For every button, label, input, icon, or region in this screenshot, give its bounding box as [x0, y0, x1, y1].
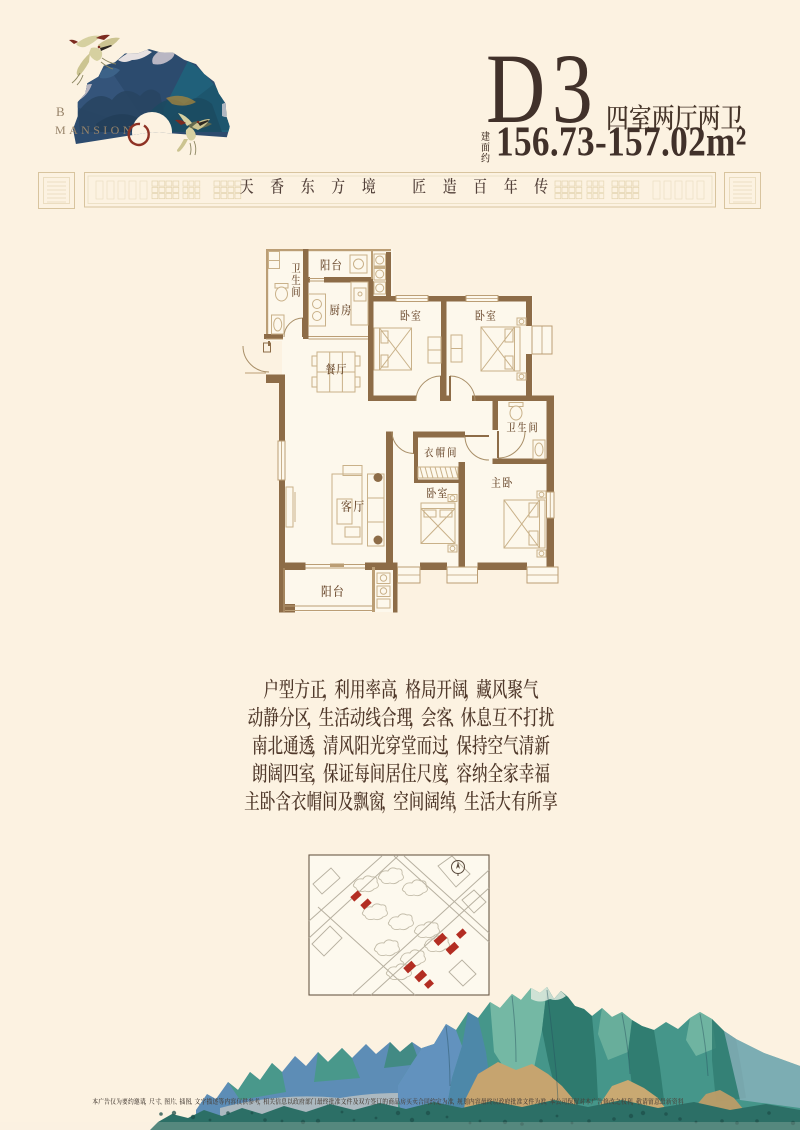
svg-text:B: B	[56, 104, 71, 119]
svg-text:156.73-157.02m²: 156.73-157.02m²	[496, 119, 747, 166]
svg-text:MANSION: MANSION	[55, 123, 135, 137]
